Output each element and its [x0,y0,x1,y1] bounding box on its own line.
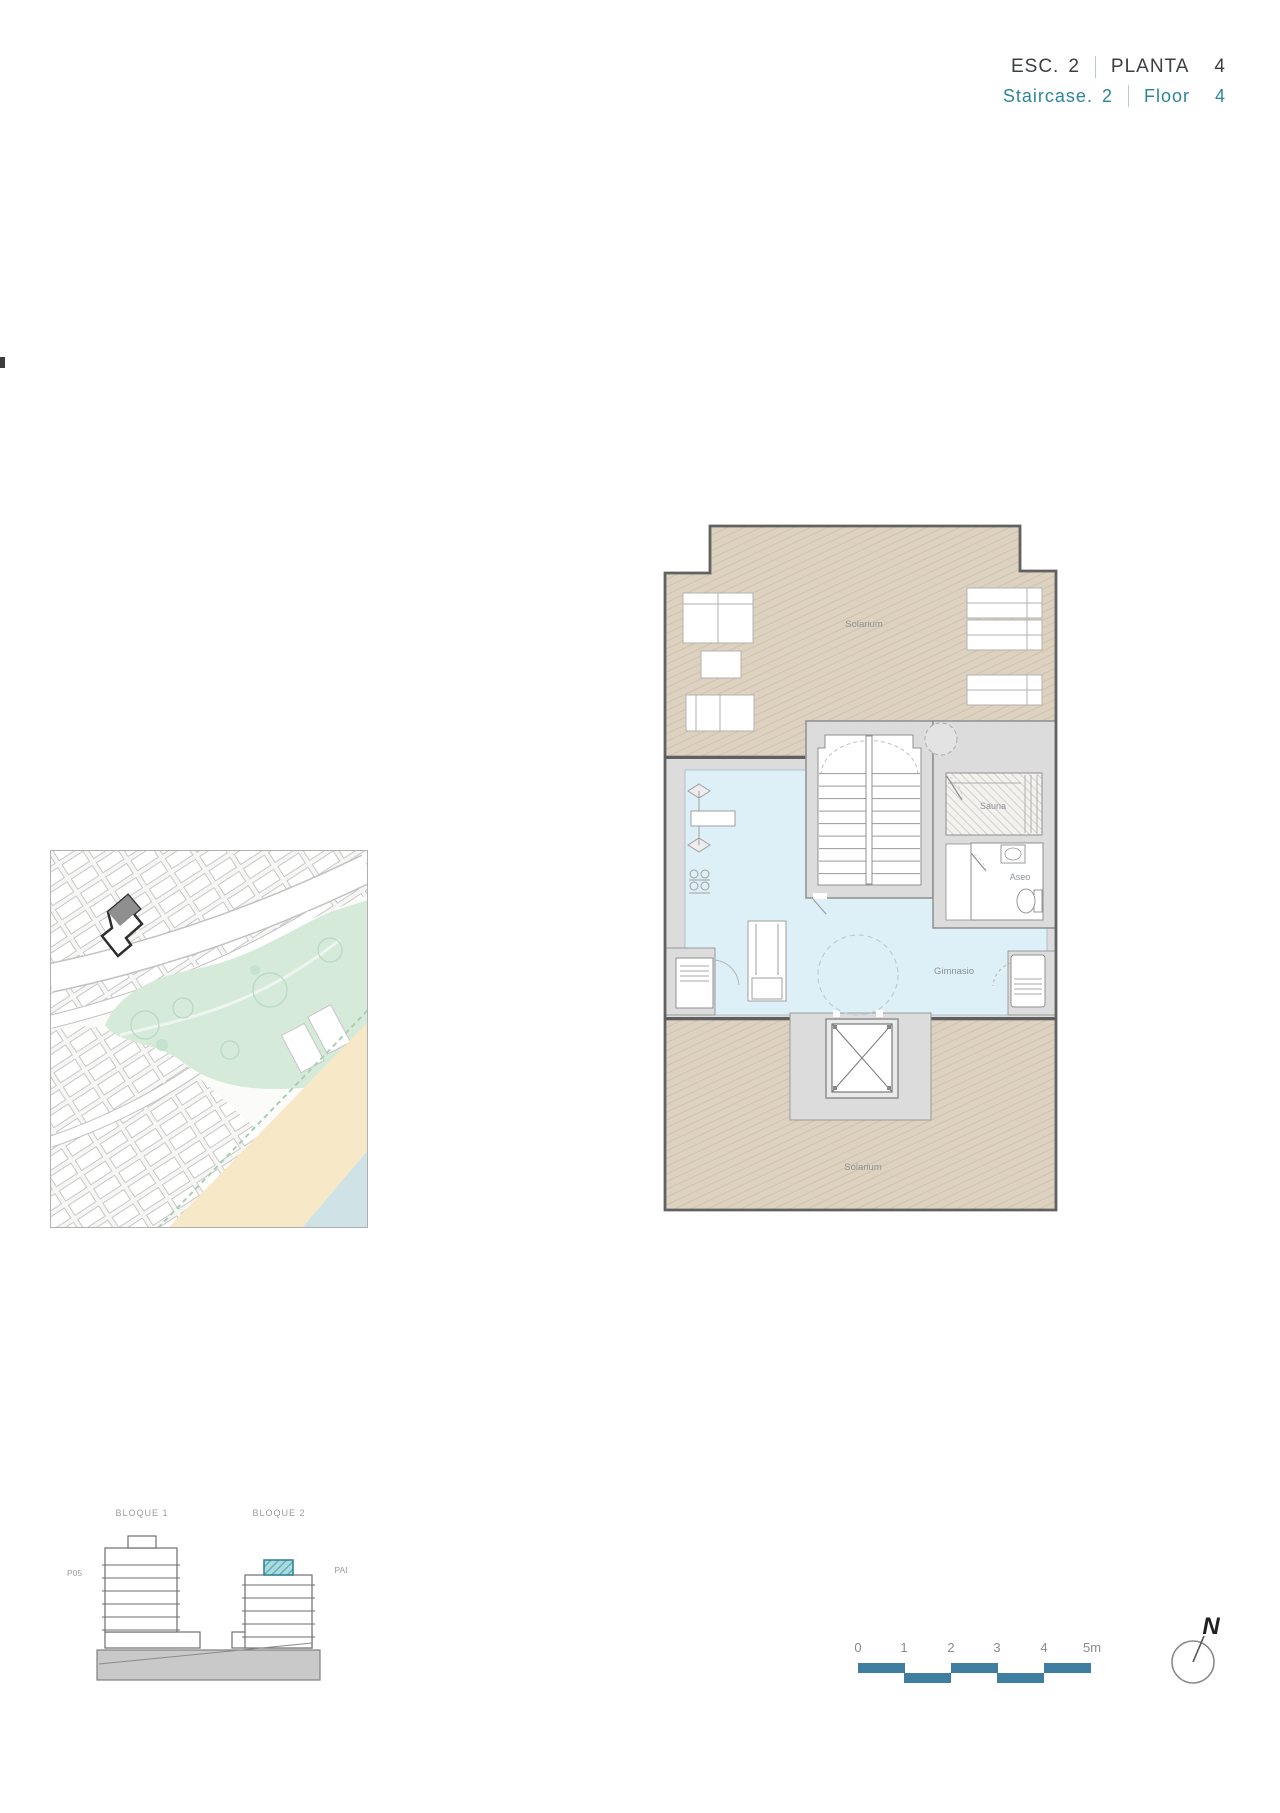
title-esc-label: ESC. [1011,56,1059,78]
scale-tick: 2 [947,1640,954,1655]
skylight-dashed-circle [925,723,957,755]
title-staircase-label: Staircase. [1003,86,1093,107]
treadmill-icon [1011,955,1045,1007]
scale-tick: 1 [900,1640,907,1655]
elevator-block [790,1010,931,1120]
title-english: Staircase. 2 Floor 4 [1003,85,1226,107]
gym-label: Gimnasio [934,966,974,977]
toilet-icon [1017,889,1042,913]
site-location-map [50,850,368,1228]
stair-stringer [866,736,872,884]
scale-tick: 5m [1083,1640,1101,1655]
floor-plan: Solarium Gimnasio Sauna Aseo Solarium [663,523,1061,1213]
scale-segment [858,1663,905,1673]
elevation-right-mark: PAI [334,1565,347,1575]
solarium-top-label: Solarium [845,619,883,630]
scale-segment [951,1663,998,1673]
door-gap [833,1010,840,1017]
door-gap [813,893,827,899]
title-planta-number: 4 [1214,56,1226,78]
title-spanish: ESC. 2 PLANTA 4 [1003,56,1226,78]
scale-tick: 4 [1040,1640,1047,1655]
washbasin-icon [1001,845,1025,863]
title-staircase-number: 2 [1102,86,1113,107]
title-floor-label: Floor [1144,86,1190,107]
title-floor-number: 4 [1215,86,1226,107]
building-elevation: BLOQUE 1 BLOQUE 2 P05 PAI [60,1495,360,1705]
title-block: ESC. 2 PLANTA 4 Staircase. 2 Floor 4 [1003,56,1226,114]
sauna-aseo-block [933,721,1056,928]
block1-label: BLOQUE 1 [115,1508,168,1518]
vestibule [946,844,971,920]
scale-segment [1044,1663,1091,1673]
block1-tower [105,1536,200,1648]
bench-machine-icon [748,921,786,1001]
elevator-shaft-icon [832,1024,892,1092]
highlighted-floor-marker [264,1560,293,1575]
scale-segment [997,1673,1044,1683]
door-gap [876,1010,883,1017]
solarium-bottom-label: Solarium [844,1162,882,1173]
title-esc-number: 2 [1068,56,1080,78]
edge-crop-mark [0,357,5,368]
north-label: N [1202,1613,1220,1640]
scale-segment [904,1673,951,1683]
sauna-label: Sauna [980,801,1006,811]
scale-tick: 3 [993,1640,1000,1655]
scale-tick: 0 [854,1640,861,1655]
scale-bar: 0 1 2 3 4 5m [855,1640,1095,1686]
block2-label: BLOQUE 2 [252,1508,305,1518]
plan-sheet: ESC. 2 PLANTA 4 Staircase. 2 Floor 4 [0,0,1280,1813]
title-divider-icon [1095,56,1096,78]
title-divider-icon [1128,85,1129,107]
gym-machine-icon [676,958,713,1008]
north-arrow: N [1163,1610,1235,1688]
ground-podium [97,1650,320,1680]
staircase-block [806,721,933,914]
elevation-left-mark: P05 [67,1568,82,1578]
aseo-label: Aseo [1010,872,1031,882]
title-planta-label: PLANTA [1111,56,1190,78]
